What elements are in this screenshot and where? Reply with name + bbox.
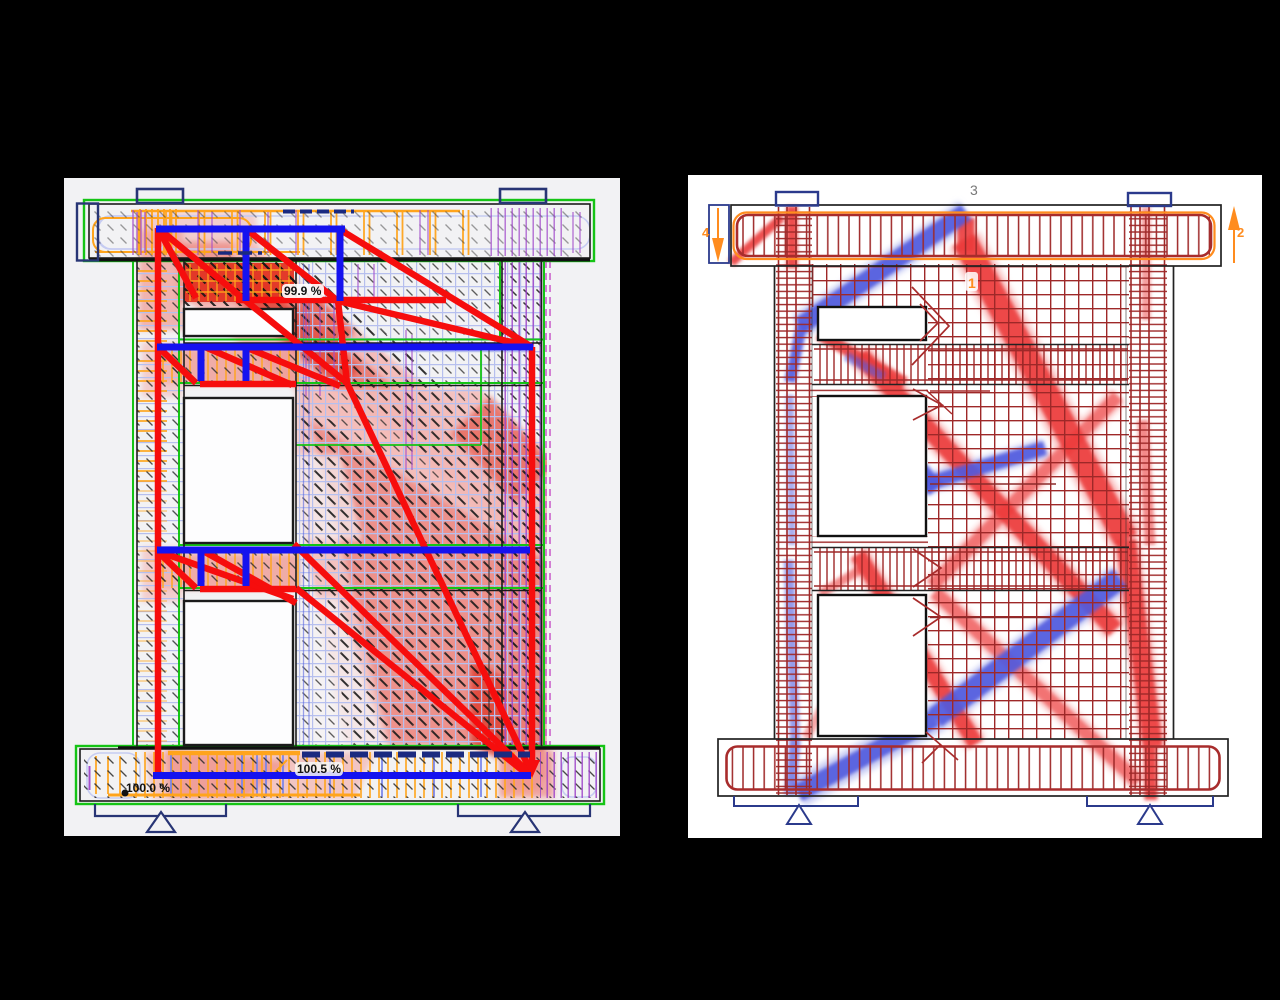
svg-text:100.0 %: 100.0 % xyxy=(126,781,170,795)
svg-text:100.5 %: 100.5 % xyxy=(297,762,341,776)
svg-text:99.9 %: 99.9 % xyxy=(284,284,322,298)
svg-text:1: 1 xyxy=(968,275,976,291)
svg-text:2: 2 xyxy=(1237,225,1244,240)
svg-text:3: 3 xyxy=(970,182,978,198)
svg-text:4: 4 xyxy=(702,225,710,240)
